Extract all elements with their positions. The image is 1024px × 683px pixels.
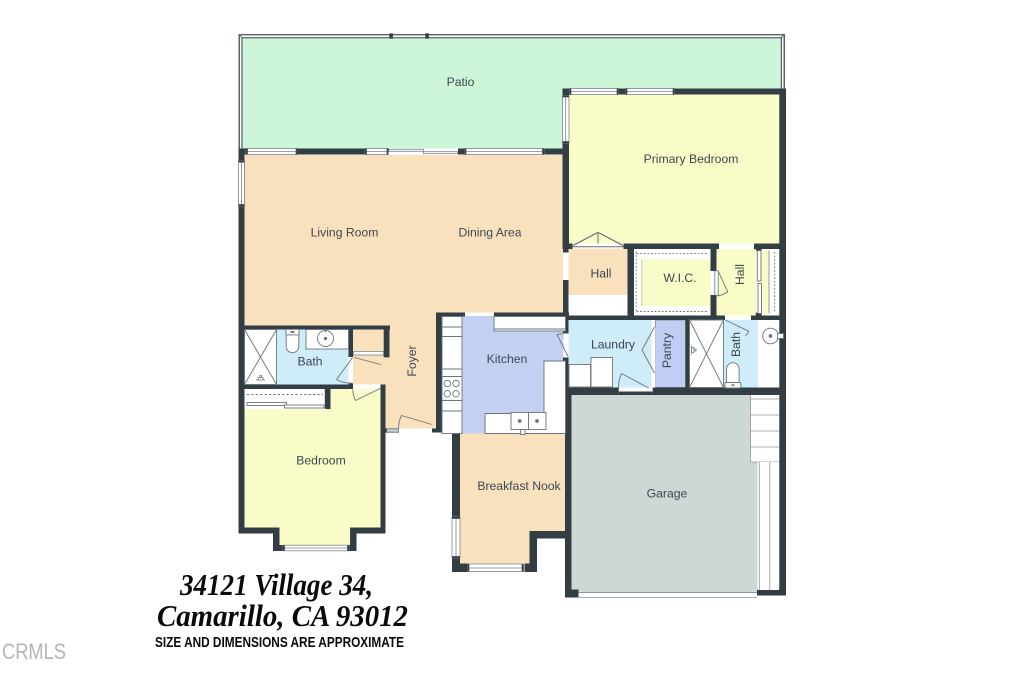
svg-text:Primary Bedroom: Primary Bedroom: [644, 152, 739, 166]
svg-text:Dining Area: Dining Area: [458, 226, 521, 240]
svg-text:Bath: Bath: [297, 355, 322, 369]
svg-text:Laundry: Laundry: [591, 338, 636, 352]
svg-text:Living Room: Living Room: [311, 226, 379, 240]
svg-text:Foyer: Foyer: [405, 345, 419, 376]
svg-text:SIZE AND DIMENSIONS ARE APPROX: SIZE AND DIMENSIONS ARE APPROXIMATE: [155, 634, 404, 651]
svg-text:34121 Village 34,: 34121 Village 34,: [179, 567, 373, 602]
svg-text:Kitchen: Kitchen: [487, 352, 528, 366]
svg-text:Patio: Patio: [447, 75, 475, 89]
svg-text:Camarillo, CA 93012: Camarillo, CA 93012: [157, 598, 408, 633]
svg-text:Garage: Garage: [647, 487, 688, 501]
svg-text:Hall: Hall: [733, 264, 747, 285]
svg-text:Breakfast Nook: Breakfast Nook: [477, 479, 561, 493]
svg-text:Hall: Hall: [591, 267, 612, 281]
svg-text:Pantry: Pantry: [660, 332, 674, 368]
svg-text:Bath: Bath: [729, 332, 743, 357]
svg-text:Bedroom: Bedroom: [296, 454, 345, 468]
svg-text:CRMLS: CRMLS: [2, 639, 66, 664]
svg-text:W.I.C.: W.I.C.: [663, 271, 696, 285]
